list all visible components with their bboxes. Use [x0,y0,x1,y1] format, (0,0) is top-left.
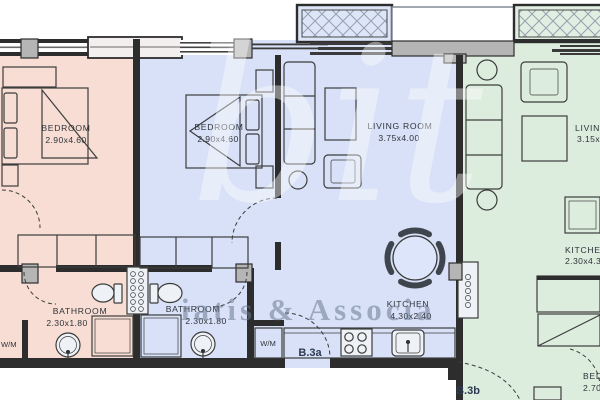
unit-b-label: B.3a [298,347,322,359]
unit-c-bedroom-dims: 2.70 [583,383,600,393]
lightwell-box [392,7,514,42]
balcony-c [514,5,600,42]
unit-b-kitchen-dims: 4.30x2.40 [390,311,431,321]
unit-a-bathroom-label: BATHROOM [53,306,108,316]
unit-a-bedroom-dims: 2.90x4.60 [45,135,86,145]
unit-c-bedroom-label: BED [583,371,600,381]
unit-c-living-dims: 3.15x [577,134,600,144]
unit-b-wm-label: W/M [260,339,276,348]
column [234,39,252,58]
dining-table [393,236,437,280]
column [21,39,38,58]
floor-plan: BEDROOM 2.90x4.60 BATHROOM 2.30x1.80 W/M… [0,0,600,400]
duct-shaft [127,267,148,314]
unit-b-bedroom-label: BEDROOM [194,122,243,132]
unit-c-label: B.3b [456,385,480,397]
toilet [158,284,182,303]
unit-b-kitchen-label: KITCHEN [387,299,430,309]
unit-b-living-dims: 3.75x4.00 [378,133,419,143]
unit-c-living-label: LIVING [575,123,600,133]
unit-b-bedroom-dims: 2.90x4.60 [197,134,238,144]
unit-a-wm-label: W/M [1,340,17,349]
unit-b-bathroom-label: BATHROOM [166,304,221,314]
column [236,264,252,282]
unit-c-kitchen-dims: 2.30x4.3 [565,256,600,266]
unit-b-bathroom-dims: 2.30x1.80 [185,316,226,326]
toilet [92,284,114,302]
floor-plan-canvas: BEDROOM 2.90x4.60 BATHROOM 2.30x1.80 W/M… [0,0,600,400]
unit-a-bedroom-label: BEDROOM [41,123,90,133]
unit-a-bathroom-dims: 2.30x1.80 [46,318,87,328]
balcony-b [297,5,392,42]
unit-c-kitchen-label: KITCHEN [565,245,600,255]
unit-b-living-label: LIVING ROOM [368,121,433,131]
